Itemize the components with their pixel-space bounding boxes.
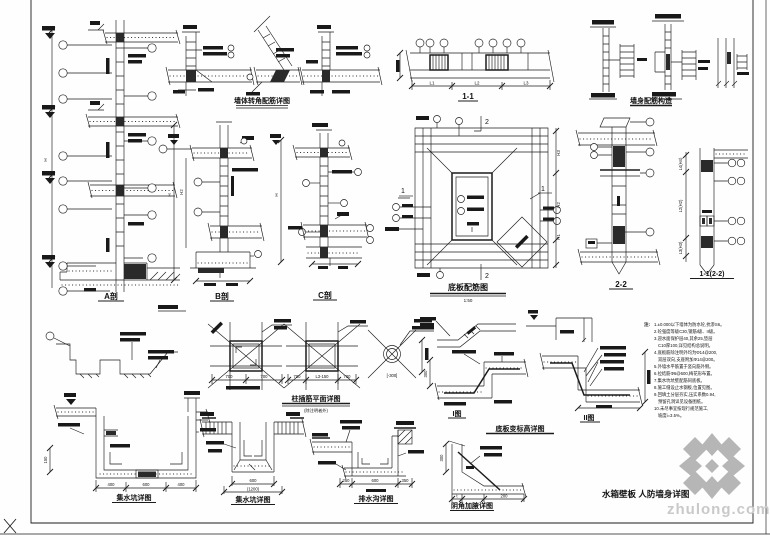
detail-wall-group: 墙身配筋构造	[589, 14, 749, 106]
dim-pit3-a: 250	[343, 478, 351, 483]
dim-p1-a: 700	[226, 374, 234, 379]
note-line: 9.回填土分层夯实,压实系数0.94,	[654, 391, 716, 398]
detail-corner-group: 墙体转角配筋详图	[166, 16, 382, 108]
note-line: 双层双向,支座附加Φ14@200。	[658, 356, 718, 363]
note-line: 3.迎水面保护层40,其余25,垫层	[654, 335, 713, 342]
note-line: 6.拉结筋Φ6@600,梅花形布置。	[654, 370, 715, 377]
dim-h-label-b: H	[167, 193, 172, 196]
dim-h2-label-b: H2	[179, 189, 184, 195]
detail-section-a: H	[42, 20, 180, 301]
note-line: 8.施工缝设止水钢板,位置见图。	[654, 384, 715, 391]
note-line: 10.未尽事宜按现行规范施工,	[654, 405, 708, 412]
dim-150: 150	[43, 456, 48, 464]
note-line: 4.底板筋除注明外均为Φ14@200,	[654, 349, 717, 356]
notes-heading: 注:	[644, 321, 651, 328]
dim-p1-b: 700	[261, 374, 269, 379]
title-haunch: 阴角加腋详图	[451, 501, 493, 510]
label-detail-i: I图	[453, 409, 462, 418]
title-plan-scale: 1:50	[464, 298, 473, 303]
dim-l2: L2	[474, 81, 480, 86]
note-line: 预留孔洞详见设备图纸。	[658, 398, 705, 405]
title-corner-group: 墙体转角配筋详图	[234, 96, 290, 105]
dim-p3: [-300]	[387, 373, 398, 378]
detail-step-profile	[46, 305, 186, 378]
note-line: 1.±0.000以下墙体为防水砼,抗渗S6。	[654, 321, 724, 328]
dim-pit2-b: (1200)	[247, 487, 260, 492]
dim-haunch-300: 300	[439, 454, 444, 462]
title-pit-mid: 集水坑详图	[235, 495, 271, 504]
dim-p2-c: 700	[344, 374, 352, 379]
dim-pit3-c: 350	[402, 478, 410, 483]
dim-h-label-c: H	[274, 193, 279, 196]
title-insert-group: 柱插筋平面详图	[292, 394, 341, 403]
note-line: C10厚100,详见结构总说明。	[658, 342, 713, 349]
detail-section-c: H C剖	[270, 123, 374, 300]
detail-section-b: H H2 B剖	[159, 122, 264, 301]
dim-l3: L3	[523, 81, 529, 86]
sheet-border	[0, 0, 770, 534]
label-1-1-2-2: 1-1(2-2)	[700, 271, 725, 278]
detail-pit-left: 150 400 600 400 集水坑详图	[43, 391, 216, 503]
notes-block: 注: 1.±0.000以下墙体为防水砼,抗渗S6。 2.砼强度等级C30,钢筋I…	[644, 321, 724, 419]
corner-register-mark	[4, 519, 16, 533]
note-line: 坡度i=3.5%。	[658, 412, 684, 419]
title-step-group: 底板变标高详图	[496, 424, 545, 433]
drawing-sheet: H	[0, 0, 770, 540]
title-pit-right: 排水沟详图	[359, 494, 394, 503]
dim-p2-a: 700	[294, 374, 302, 379]
note-line: 7.集水坑坑壁配筋同底板。	[654, 377, 705, 384]
note-line: 2.砼强度等级C30,钢筋I级、II级。	[654, 328, 718, 335]
footer-area: 水箱壁板 人防墙身详图 zhulong.com	[601, 433, 770, 518]
watermark-text: zhulong.com	[667, 501, 770, 518]
section-mark-2-top: 2	[485, 119, 489, 126]
dim-pit1-b: 600	[143, 482, 151, 487]
section-mark-2-bottom: 2	[485, 273, 489, 280]
label-section-b: B剖	[215, 291, 229, 301]
detail-1-1-2-2: L4(H4) L2(H2) L3(H3) 1-1(2-2)	[678, 148, 748, 279]
detail-section-1-1: L1 L2 L3 1-1	[396, 39, 554, 101]
title-plan: 底板配筋图	[447, 282, 488, 292]
label-section-1-1: 1-1	[462, 92, 474, 101]
dim-pit1-c: 400	[178, 482, 186, 487]
dim-h3: H3	[556, 150, 561, 156]
dim-h2: H2	[556, 202, 561, 208]
detail-pit-mid: 600 (1200) 集水坑详图	[200, 412, 306, 505]
detail-insert-group: 700 700 700 L3-150 700 [-300] 柱插筋平面详图 (除…	[208, 319, 434, 414]
dim-p2-b: L3-150	[315, 374, 329, 379]
title-pit-left: 集水坑详图	[116, 493, 152, 502]
dim-l4h4: L4(H4)	[678, 157, 683, 170]
dim-pit2-a: 600	[250, 478, 258, 483]
sheet-caption: 水箱壁板 人防墙身详图	[601, 489, 689, 499]
dim-pit1-a: 400	[108, 482, 116, 487]
detail-pit-right: 250 600 350 排水沟详图	[310, 420, 424, 504]
section-mark-1-right: 1	[541, 186, 545, 193]
dim-pit3-b: 600	[372, 478, 380, 483]
label-section-c: C剖	[318, 290, 332, 300]
section-mark-1-left: 1	[401, 188, 405, 195]
title-wall-group: 墙身配筋构造	[630, 96, 673, 105]
dim-haunch-200: 200	[501, 494, 509, 499]
note-line: 5.外墙水平筋置于竖向筋外侧。	[654, 363, 713, 370]
label-section-a: A剖	[104, 291, 118, 301]
dim-l1: L1	[429, 81, 435, 86]
cad-canvas: H	[0, 0, 770, 540]
detail-haunch: 300 t 200 阴角加腋详图	[439, 441, 527, 511]
level-flags	[42, 26, 55, 268]
dim-h-label: H	[43, 158, 48, 161]
dim-l3h3: L3(H3)	[678, 241, 683, 254]
detail-plan: 2 2 1 1 H3 H2 H1 底板配筋图 1:50	[385, 116, 561, 304]
dim-h1: H1	[556, 234, 561, 240]
label-section-2-2: 2-2	[615, 280, 627, 289]
dim-step-300: 300	[423, 370, 428, 378]
dim-l2h2: L2(H2)	[678, 199, 683, 212]
detail-section-2-2: 2-2	[576, 118, 660, 289]
title-insert-sub: (除注明者外)	[304, 407, 328, 414]
label-detail-ii: II图	[584, 413, 595, 422]
detail-step-group: 300 I图 II图 底板变标高详图	[420, 310, 651, 434]
